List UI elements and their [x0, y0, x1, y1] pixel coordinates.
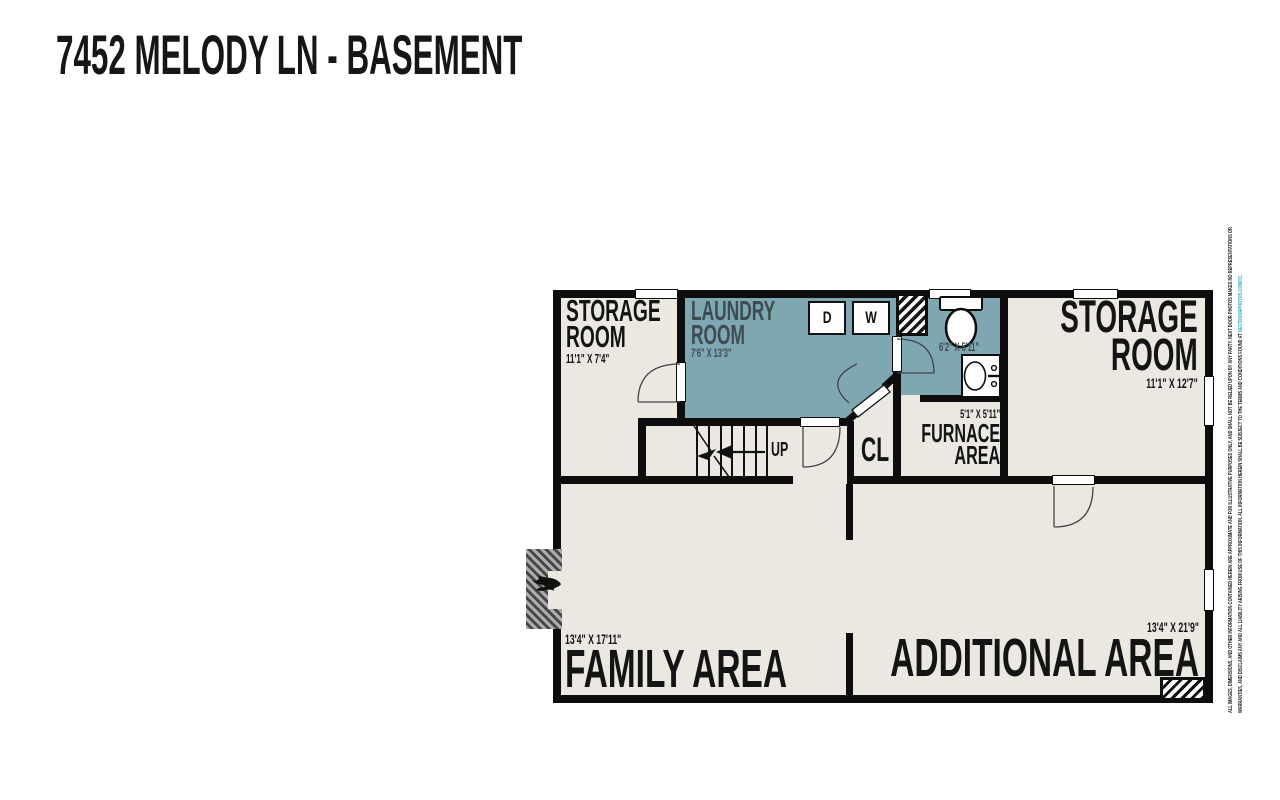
door-bathroom — [897, 339, 934, 373]
label-closet: CL — [861, 431, 889, 470]
floorplan-page: 7452 MELODY LN - BASEMENT — [0, 0, 1280, 800]
family-name: FAMILY AREA — [565, 647, 787, 692]
washer-box: W — [852, 301, 890, 335]
laundry-dimensions: 7'6" X 13'3" — [691, 348, 775, 359]
stair-direction-arrow — [716, 445, 765, 459]
disclaimer-terms-link: NEXTDOORPHOTOS.COM/TC. — [1238, 275, 1244, 333]
furnace-name-line2: AREA — [921, 445, 1000, 467]
sink-icon — [962, 355, 1000, 397]
label-storage-room-right: STORAGE ROOM 11'1" X 12'7" — [1061, 298, 1198, 389]
door-storage-left — [638, 364, 680, 402]
door-hall-laundry — [803, 426, 840, 467]
disclaimer-line2-text: WARRANTIES, AND DISCLAIMS ANY AND ALL LI… — [1238, 332, 1244, 713]
label-bathroom-dimensions: 6'2" X 5'11" — [939, 340, 979, 354]
label-laundry-room: LAUNDRY ROOM 7'6" X 13'3" — [691, 299, 775, 359]
label-storage-room-left: STORAGE ROOM 11'1" X 7'4" — [566, 298, 661, 365]
disclaimer-line1: ALL IMAGES, DIMENSIONS, AND OTHER INFORM… — [1226, 301, 1236, 713]
additional-name: ADDITIONAL AREA — [890, 636, 1199, 681]
fireplace-flame-icon — [532, 574, 562, 600]
label-stairs-up: UP — [771, 439, 788, 462]
label-family-area: 13'4" X 17'11" FAMILY AREA — [565, 631, 787, 692]
label-furnace-area: 5'1" X 5'11" FURNACE AREA — [921, 410, 1000, 466]
chimney-hatch — [896, 293, 928, 336]
storage-left-dimensions: 11'1" X 7'4" — [566, 354, 661, 365]
washer-label: W — [865, 308, 877, 328]
legal-disclaimer: ALL IMAGES, DIMENSIONS, AND OTHER INFORM… — [1226, 301, 1246, 713]
dryer-box: D — [808, 301, 846, 335]
dryer-label: D — [823, 308, 832, 328]
label-additional-area: 13'4" X 21'9" ADDITIONAL AREA — [890, 619, 1199, 681]
disclaimer-line2: WARRANTIES, AND DISCLAIMS ANY AND ALL LI… — [1236, 301, 1246, 713]
basement-floorplan: D W STORAGE ROOM 11'1" X 7'4" LAUNDRY RO… — [553, 290, 1213, 703]
laundry-name-line2: ROOM — [691, 323, 775, 347]
page-title: 7452 MELODY LN - BASEMENT — [56, 22, 522, 87]
door-storage-right — [1054, 486, 1093, 527]
